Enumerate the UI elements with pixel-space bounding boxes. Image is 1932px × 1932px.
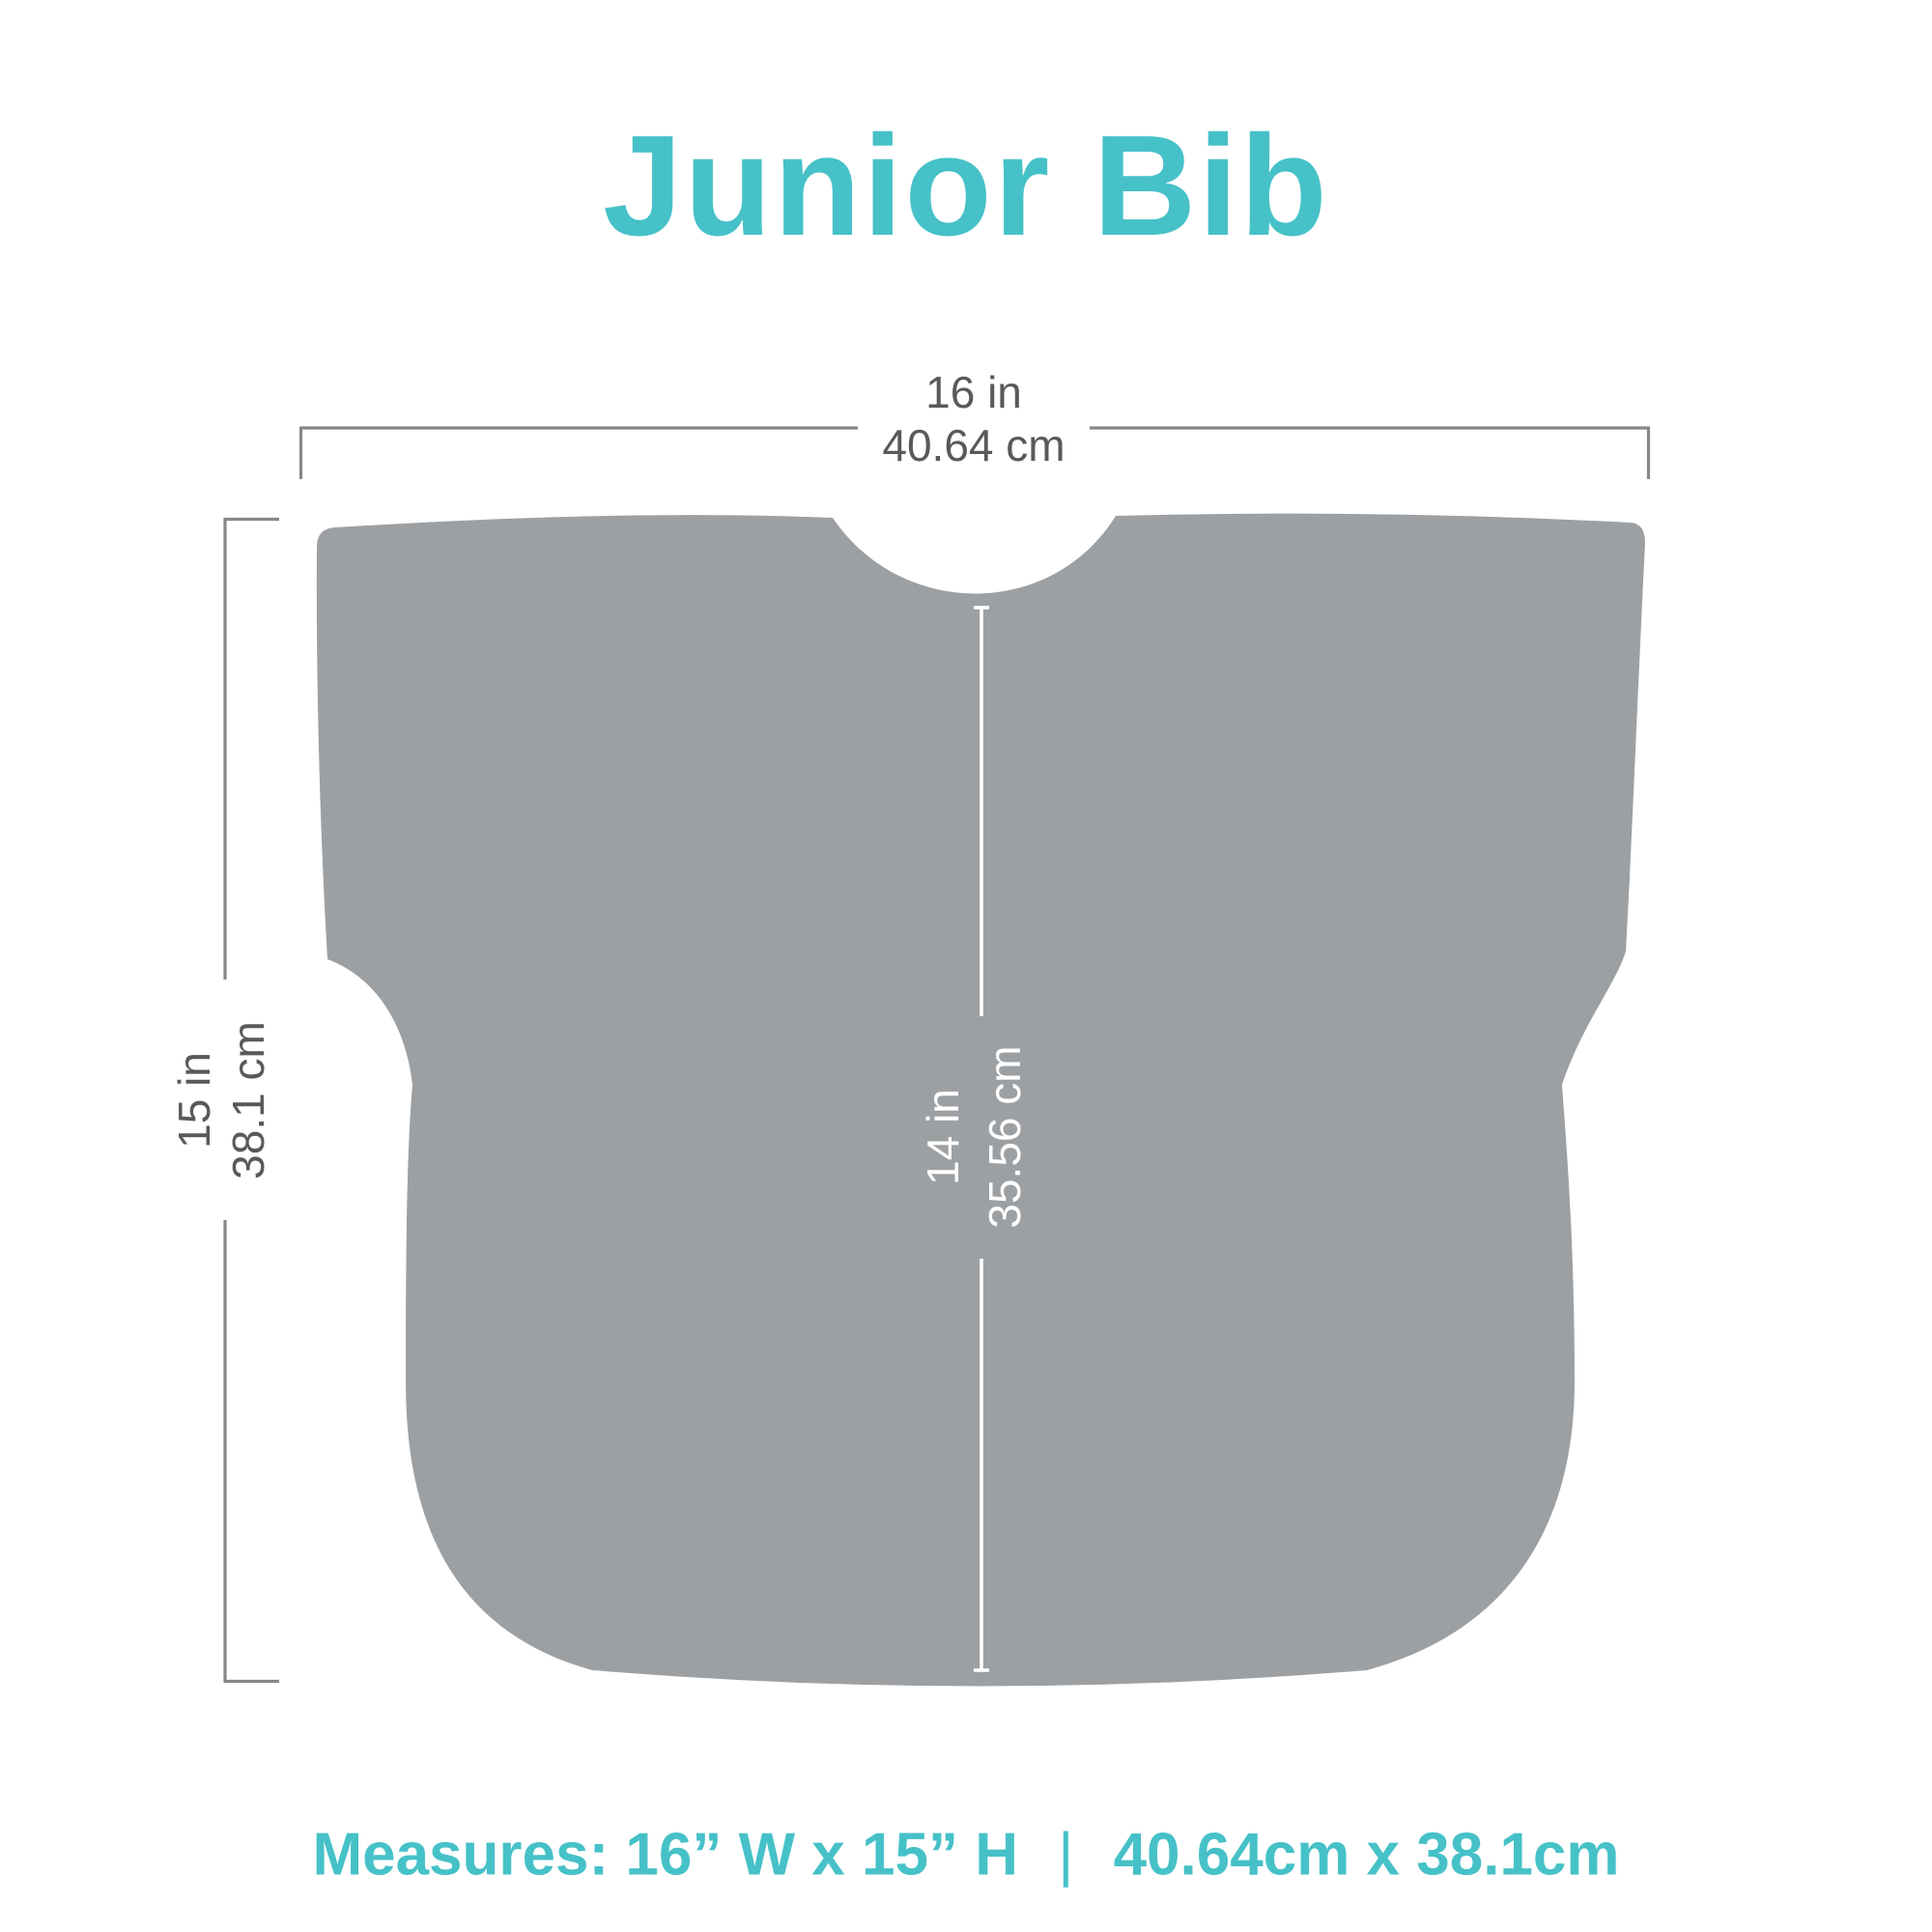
caption-separator: | — [1058, 1821, 1073, 1889]
caption-imperial: 16” W x 15” H — [625, 1822, 1018, 1889]
width-dimension-label: 16 in 40.64 cm — [882, 366, 1065, 472]
measurements-caption: Measures: 16” W x 15” H | 40.64cm x 38.1… — [0, 1821, 1932, 1889]
width-imperial-value: 16 in — [882, 366, 1065, 419]
bib-diagram-svg — [0, 0, 1932, 1932]
center-length-imperial-value: 14 in — [912, 1045, 974, 1228]
height-imperial-value: 15 in — [167, 1021, 221, 1179]
width-metric-value: 40.64 cm — [882, 419, 1065, 472]
height-metric-value: 38.1 cm — [221, 1021, 275, 1179]
caption-label: Measures: — [312, 1822, 609, 1889]
height-dimension-label: 15 in 38.1 cm — [167, 1021, 275, 1179]
caption-metric: 40.64cm x 38.1cm — [1114, 1822, 1620, 1889]
junior-bib-size-diagram: Junior Bib 16 in 40.64 cm — [0, 0, 1932, 1932]
center-length-metric-value: 35.56 cm — [974, 1045, 1036, 1228]
center-length-dimension-label: 14 in 35.56 cm — [912, 1045, 1036, 1228]
